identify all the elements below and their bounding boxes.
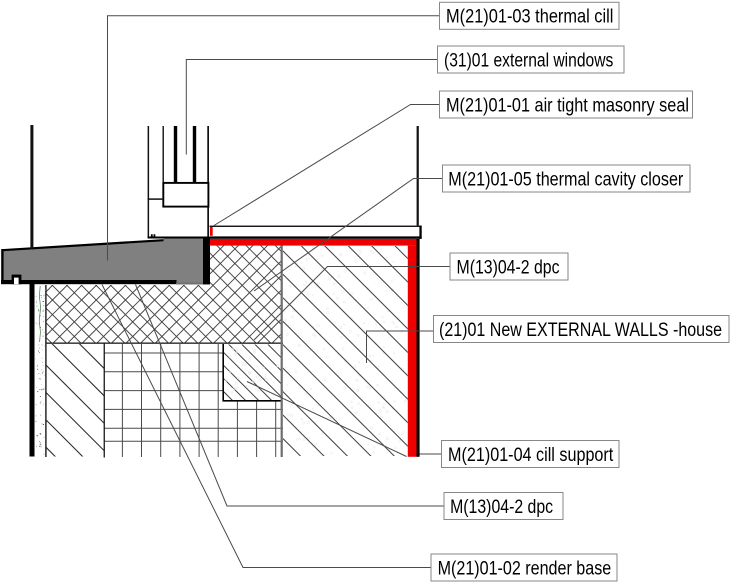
svg-text:M(21)01-01 air tight masonry s: M(21)01-01 air tight masonry seal <box>446 95 689 116</box>
svg-text:(31)01 external windows: (31)01 external windows <box>444 50 613 71</box>
svg-text:M(21)01-05 thermal cavity clos: M(21)01-05 thermal cavity closer <box>448 169 684 190</box>
svg-text:M(13)04-2 dpc: M(13)04-2 dpc <box>450 497 553 518</box>
svg-text:M(21)01-03 thermal cill: M(21)01-03 thermal cill <box>446 7 613 28</box>
svg-text:M(13)04-2 dpc: M(13)04-2 dpc <box>457 257 560 278</box>
svg-text:M(21)01-04 cill support: M(21)01-04 cill support <box>448 445 614 466</box>
svg-text:(21)01 New EXTERNAL WALLS -hou: (21)01 New EXTERNAL WALLS -house <box>439 320 722 341</box>
svg-text:M(21)01-02 render base: M(21)01-02 render base <box>438 558 612 579</box>
